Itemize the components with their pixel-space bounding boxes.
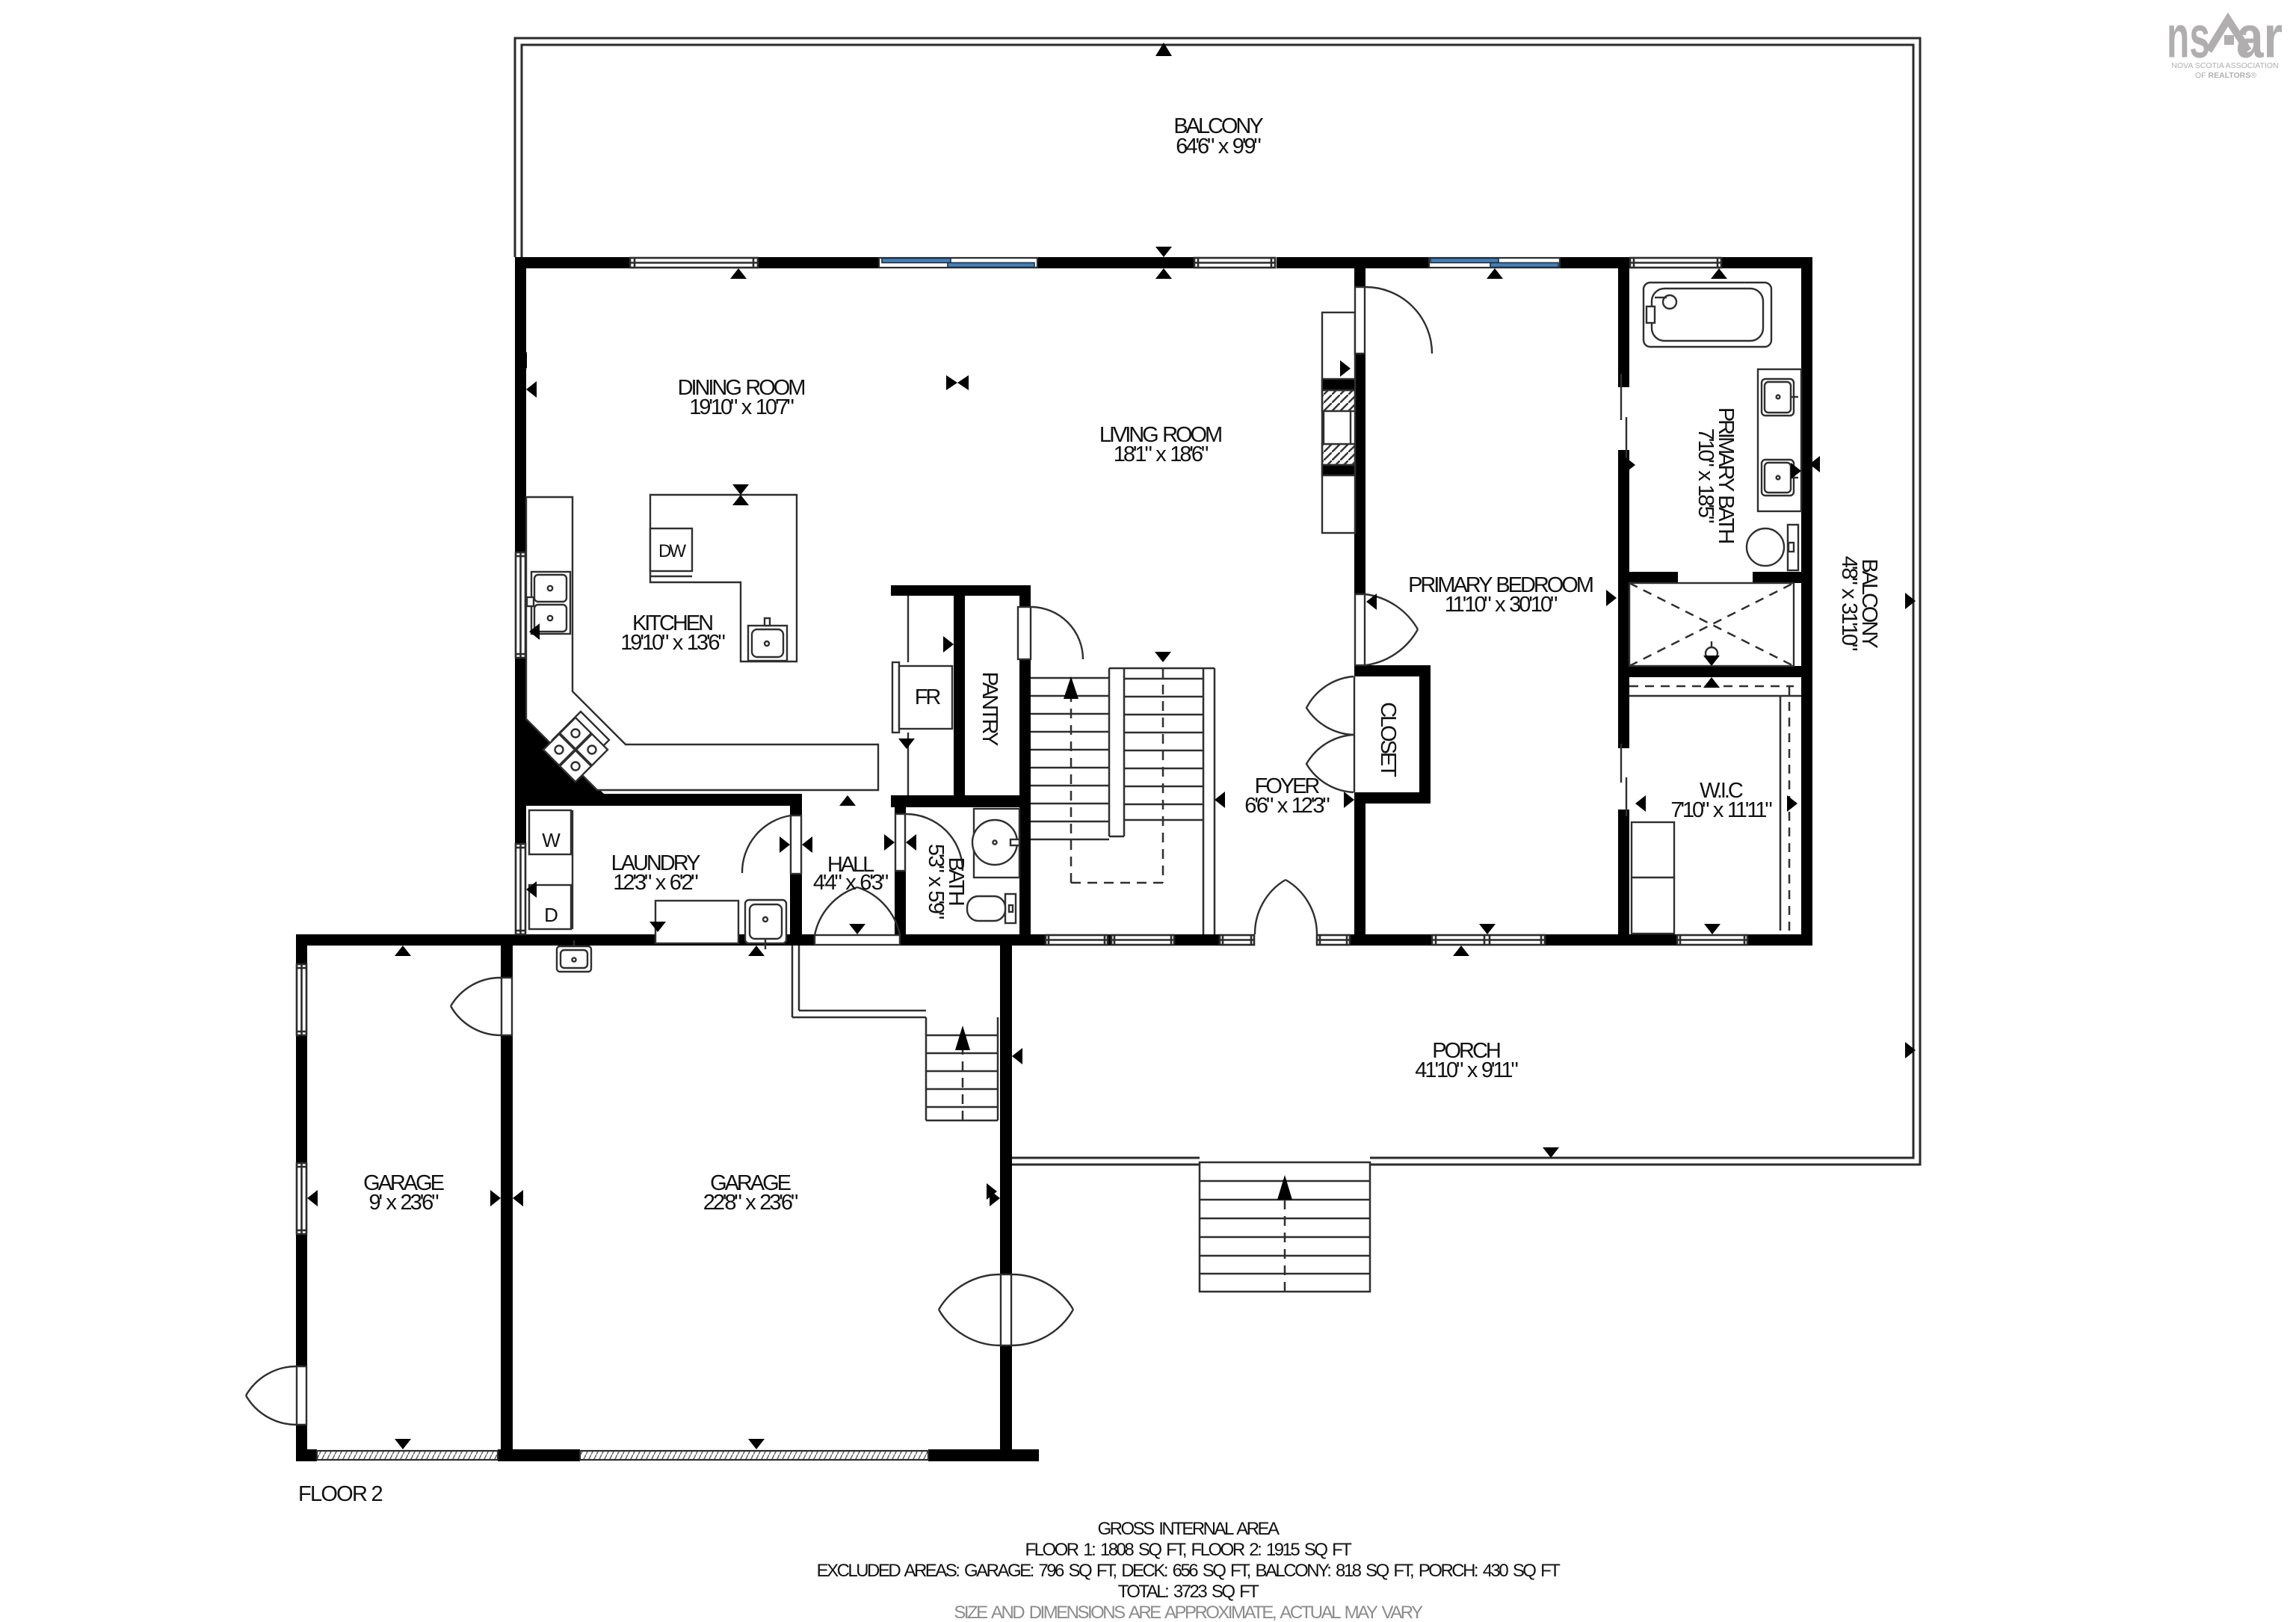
svg-text:41'10" x 9'11": 41'10" x 9'11" (1415, 1058, 1518, 1082)
svg-text:7'10" x 11'11": 7'10" x 11'11" (1670, 798, 1772, 822)
svg-text:PANTRY: PANTRY (978, 672, 1002, 746)
svg-text:FR: FR (915, 685, 941, 709)
svg-text:W: W (542, 829, 561, 851)
svg-text:GROSS INTERNAL AREA: GROSS INTERNAL AREA (1098, 1519, 1280, 1539)
svg-text:CLOSET: CLOSET (1376, 702, 1400, 777)
svg-text:FLOOR 1: 1808 SQ FT, FLOOR 2:: FLOOR 1: 1808 SQ FT, FLOOR 2: 1915 SQ FT (1025, 1540, 1353, 1560)
svg-text:11'10" x 30'10": 11'10" x 30'10" (1445, 593, 1558, 617)
svg-text:22'8" x 23'6": 22'8" x 23'6" (703, 1191, 798, 1215)
svg-text:TOTAL: 3723 SQ FT: TOTAL: 3723 SQ FT (1118, 1582, 1260, 1602)
svg-text:4'4" x 6'3": 4'4" x 6'3" (813, 871, 889, 895)
svg-text:7'10" x 18'5": 7'10" x 18'5" (1694, 428, 1718, 523)
svg-text:18'1" x 18'6": 18'1" x 18'6" (1114, 442, 1209, 466)
svg-text:19'10" x 13'6": 19'10" x 13'6" (620, 631, 725, 655)
svg-text:4'8" x 31'10": 4'8" x 31'10" (1837, 556, 1861, 651)
svg-text:FLOOR 2: FLOOR 2 (298, 1482, 383, 1506)
svg-text:9' x 23'6": 9' x 23'6" (368, 1191, 439, 1215)
svg-text:5'3" x 5'9": 5'3" x 5'9" (924, 844, 948, 919)
svg-text:NOVA SCOTIA ASSOCIATION: NOVA SCOTIA ASSOCIATION (2171, 61, 2278, 70)
svg-text:OF REALTORS®: OF REALTORS® (2195, 71, 2256, 80)
svg-text:DW: DW (658, 541, 686, 561)
svg-text:EXCLUDED AREAS: GARAGE: 796 SQ: EXCLUDED AREAS: GARAGE: 796 SQ FT, DECK:… (817, 1561, 1561, 1581)
svg-text:12'3" x 6'2": 12'3" x 6'2" (613, 871, 698, 895)
svg-text:SIZE AND DIMENSIONS ARE APPROX: SIZE AND DIMENSIONS ARE APPROXIMATE, ACT… (954, 1603, 1423, 1622)
svg-text:64'6" x 9'9": 64'6" x 9'9" (1176, 135, 1261, 158)
svg-text:19'10" x 10'7": 19'10" x 10'7" (689, 395, 794, 419)
svg-text:D: D (544, 904, 558, 926)
svg-text:ns: ns (2167, 4, 2210, 70)
svg-text:6'6" x 12'3": 6'6" x 12'3" (1244, 794, 1330, 818)
